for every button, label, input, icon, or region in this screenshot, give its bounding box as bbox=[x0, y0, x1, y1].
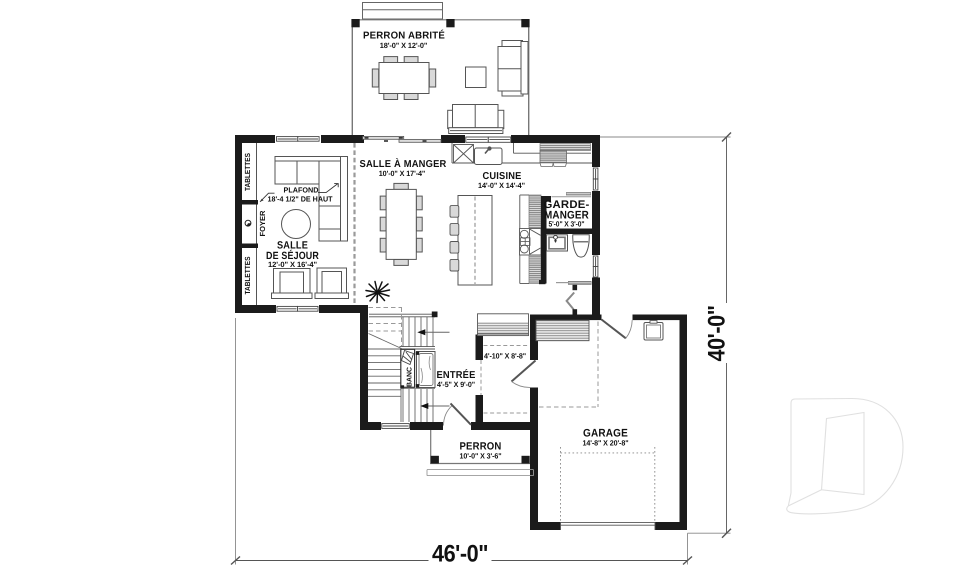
svg-text:14'-0" X 14'-4": 14'-0" X 14'-4" bbox=[478, 181, 525, 190]
svg-text:4'-10" X 8'-8": 4'-10" X 8'-8" bbox=[484, 352, 526, 361]
svg-text:TABLETTES: TABLETTES bbox=[243, 256, 252, 294]
svg-text:46'-0": 46'-0" bbox=[432, 541, 488, 568]
svg-text:12'-0" X 16'-4": 12'-0" X 16'-4" bbox=[268, 260, 317, 269]
svg-text:PERRON ABRITÉ: PERRON ABRITÉ bbox=[363, 29, 445, 41]
svg-text:FOYER: FOYER bbox=[258, 210, 267, 237]
svg-text:10'-0" X 3'-6": 10'-0" X 3'-6" bbox=[460, 451, 502, 460]
svg-text:40'-0": 40'-0" bbox=[704, 306, 731, 362]
svg-text:BANC: BANC bbox=[407, 367, 414, 387]
svg-text:TABLETTES: TABLETTES bbox=[243, 153, 252, 191]
svg-text:SALLE À MANGER: SALLE À MANGER bbox=[360, 158, 448, 170]
svg-text:14'-8" X 20'-8": 14'-8" X 20'-8" bbox=[583, 439, 629, 448]
svg-text:10'-0" X 17'-4": 10'-0" X 17'-4" bbox=[379, 169, 426, 178]
svg-text:18'-4 1/2" DE HAUT: 18'-4 1/2" DE HAUT bbox=[268, 194, 333, 203]
svg-text:GARAGE: GARAGE bbox=[583, 427, 628, 439]
svg-text:5'-0" X 3'-0": 5'-0" X 3'-0" bbox=[549, 220, 585, 229]
svg-text:18'-0" X 12'-0": 18'-0" X 12'-0" bbox=[380, 41, 428, 50]
svg-text:PLAFOND: PLAFOND bbox=[284, 186, 320, 195]
svg-text:4'-5" X 9'-0": 4'-5" X 9'-0" bbox=[437, 380, 475, 389]
